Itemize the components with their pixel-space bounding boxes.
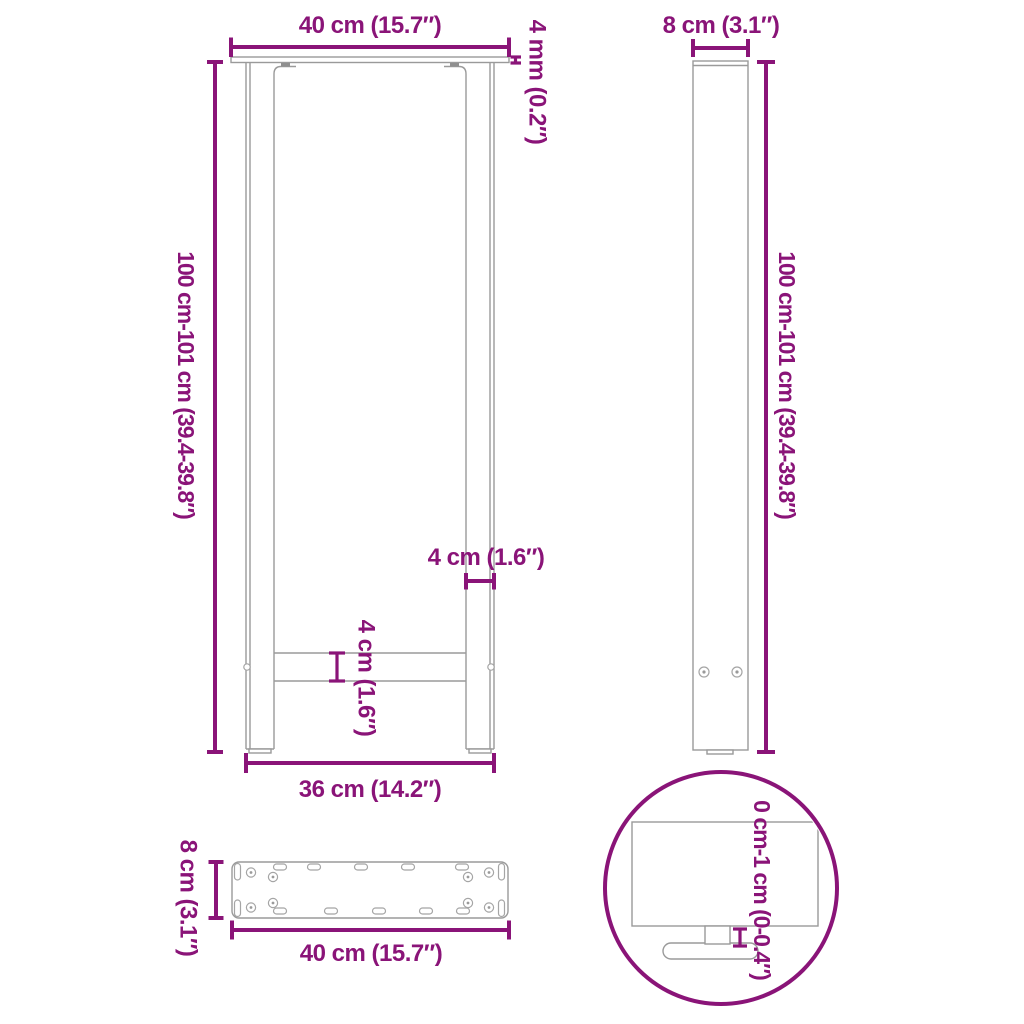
plate-width-label: 40 cm (15.7″)	[300, 940, 442, 967]
detail-view: 0 cm-1 cm (0-0.4″)	[605, 772, 837, 1004]
front-height-label: 100 cm-101 cm (39.4-39.8″)	[173, 251, 199, 519]
front-view: 40 cm (15.7″) 4 mm (0.2″) 100 cm-101 cm …	[173, 12, 551, 803]
slot	[235, 900, 241, 917]
side-height-label: 100 cm-101 cm (39.4-39.8″)	[774, 251, 800, 519]
front-top-width-dimension: 40 cm (15.7″)	[231, 12, 509, 57]
side-depth-label: 8 cm (3.1″)	[663, 12, 780, 39]
detail-drawing	[632, 822, 818, 959]
slot	[457, 908, 470, 914]
slot	[274, 864, 287, 870]
front-plate-thickness-label: 4 mm (0.2″)	[524, 20, 551, 145]
diagram-canvas: 40 cm (15.7″) 4 mm (0.2″) 100 cm-101 cm …	[0, 0, 1024, 1024]
slot	[325, 908, 338, 914]
front-right-tab	[450, 63, 459, 67]
plate-width-dimension: 40 cm (15.7″)	[232, 921, 509, 968]
slot	[373, 908, 386, 914]
plate-depth-dimension: 8 cm (3.1″)	[175, 840, 224, 957]
slot	[355, 864, 368, 870]
side-height-dimension: 100 cm-101 cm (39.4-39.8″)	[757, 62, 800, 752]
slot	[308, 864, 321, 870]
slot	[235, 864, 241, 881]
side-view: 8 cm (3.1″) 100 cm-101 cm (39.4-39.8″)	[663, 12, 800, 754]
front-height-dimension: 100 cm-101 cm (39.4-39.8″)	[173, 62, 223, 752]
detail-foot-stem	[705, 926, 730, 944]
side-depth-dimension: 8 cm (3.1″)	[663, 12, 780, 57]
front-plate-thickness-dimension: 4 mm (0.2″)	[511, 20, 551, 145]
front-bottom-width-dimension: 36 cm (14.2″)	[246, 753, 494, 803]
slot	[499, 864, 505, 881]
plate-view: 8 cm (3.1″) 40 cm (15.7″)	[175, 840, 510, 967]
front-leg-width-dimension: 4 cm (1.6″)	[428, 544, 545, 590]
front-top-width-label: 40 cm (15.7″)	[299, 12, 441, 39]
front-leg-width-label: 4 cm (1.6″)	[428, 544, 545, 571]
slot	[274, 908, 287, 914]
slot	[456, 864, 469, 870]
front-left-tab	[281, 63, 290, 67]
slot	[499, 900, 505, 917]
side-column	[693, 61, 748, 750]
crossbar-rivet	[488, 664, 494, 670]
detail-leg-bottom	[632, 822, 818, 926]
front-crossbar-dimension: 4 cm (1.6″)	[329, 620, 380, 737]
front-crossbar-label: 4 cm (1.6″)	[353, 620, 380, 737]
front-top-plate	[231, 57, 509, 63]
front-left-leg	[246, 63, 296, 754]
plate-depth-label: 8 cm (3.1″)	[175, 840, 202, 957]
front-right-foot	[469, 749, 491, 753]
front-right-leg	[444, 63, 494, 754]
dimension-diagram: 40 cm (15.7″) 4 mm (0.2″) 100 cm-101 cm …	[0, 0, 1024, 1024]
slot	[402, 864, 415, 870]
slot	[420, 908, 433, 914]
front-left-foot	[249, 749, 271, 753]
detail-adjustment-label: 0 cm-1 cm (0-0.4″)	[749, 800, 775, 980]
front-bottom-width-label: 36 cm (14.2″)	[299, 776, 441, 803]
side-foot	[707, 750, 733, 754]
crossbar-rivet	[244, 664, 250, 670]
